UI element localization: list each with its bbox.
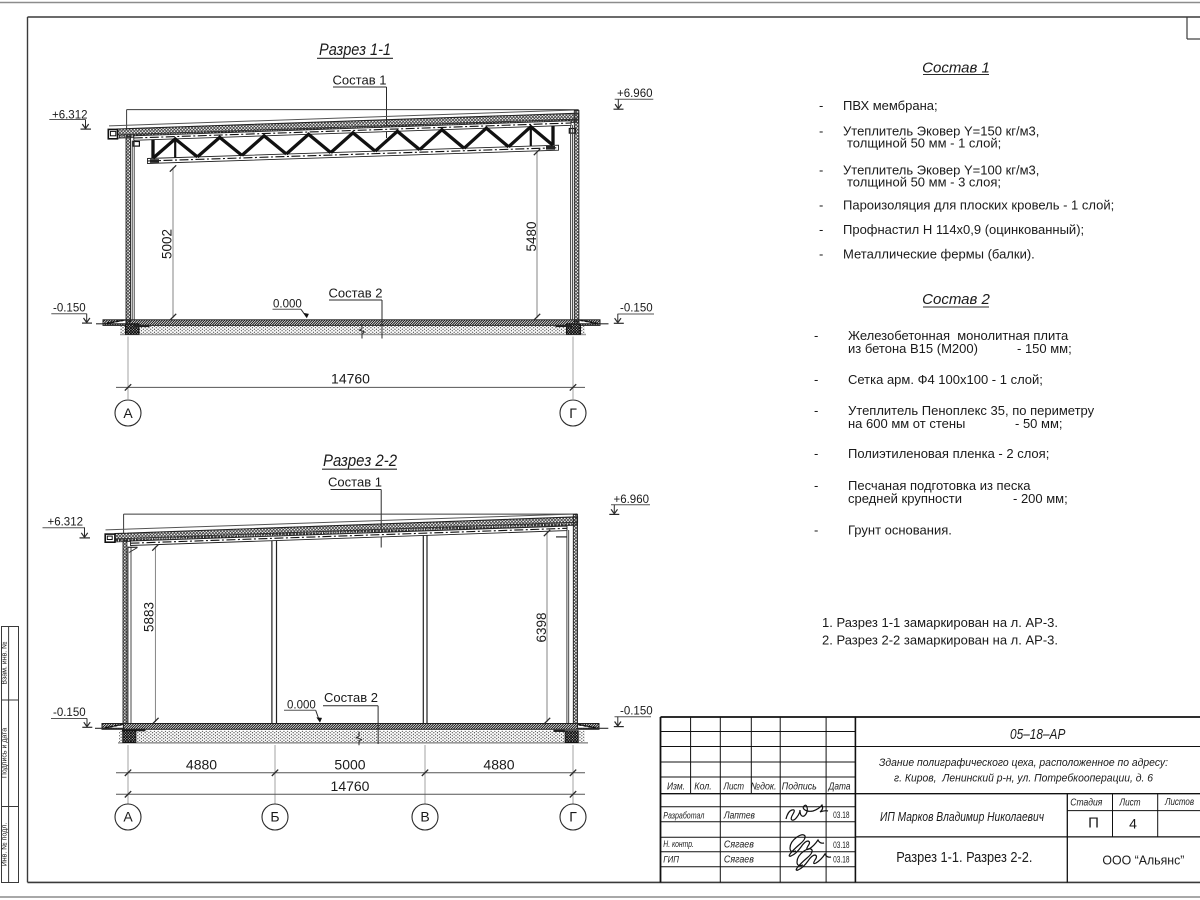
svg-text:ООО “Альянс”: ООО “Альянс” [1102,853,1184,868]
svg-text:Состав 1: Состав 1 [333,73,387,88]
svg-text:Лист: Лист [723,782,744,793]
svg-text:Н. контр.: Н. контр. [663,839,694,849]
svg-text:-0.150: -0.150 [53,303,86,315]
svg-text:+6.312: +6.312 [48,517,84,529]
svg-text:4880: 4880 [186,757,217,773]
svg-text:-: - [819,198,823,213]
svg-text:Состав 1: Состав 1 [328,475,382,490]
svg-text:14760: 14760 [331,371,370,387]
svg-text:-: - [814,446,818,461]
svg-text:средней крупности: средней крупности [848,491,962,506]
svg-text:толщиной 50 мм - 3 слоя;: толщиной 50 мм - 3 слоя; [847,175,1001,190]
svg-text:Сягаев: Сягаев [724,855,754,866]
svg-text:05–18–АР: 05–18–АР [1010,727,1066,743]
svg-text:5480: 5480 [524,221,539,251]
svg-text:Состав 1: Состав 1 [922,59,990,76]
svg-text:Разрез 2-2: Разрез 2-2 [323,452,397,470]
svg-text:5883: 5883 [142,602,157,632]
svg-text:+6.960: +6.960 [617,88,653,100]
svg-text:Здание полиграфического цеха,: Здание полиграфического цеха, расположен… [879,757,1168,769]
svg-text:Кол.: Кол. [694,782,712,793]
svg-text:Подпись: Подпись [782,782,817,793]
svg-text:Сягаев: Сягаев [724,840,754,851]
svg-text:из бетона В15 (М200): из бетона В15 (М200) [848,341,978,356]
svg-text:-: - [814,328,818,343]
svg-text:6398: 6398 [534,612,549,642]
svg-text:Лист: Лист [1119,797,1141,809]
svg-text:Стадия: Стадия [1070,797,1102,809]
svg-text:Подпись и дата: Подпись и дата [2,728,9,778]
svg-text:В: В [420,809,429,825]
svg-text:4: 4 [1129,816,1137,832]
svg-text:Разрез 1-1. Разрез 2-2.: Разрез 1-1. Разрез 2-2. [896,849,1032,866]
svg-text:Дата: Дата [828,782,851,793]
svg-text:-: - [814,372,818,387]
svg-text:Грунт основания.: Грунт основания. [848,523,952,538]
svg-text:Металлические фермы (балки).: Металлические фермы (балки). [843,247,1035,262]
svg-text:Взам. инв. №: Взам. инв. № [2,641,9,684]
svg-text:-0.150: -0.150 [620,303,653,315]
svg-text:Разрез 1-1: Разрез 1-1 [319,41,391,59]
svg-text:Пароизоляция для плоских крове: Пароизоляция для плоских кровель - 1 сло… [843,198,1114,213]
svg-text:г. Киров, Ленинский р-н, ул.: г. Киров, Ленинский р-н, ул. Потребкоопе… [894,772,1154,784]
svg-text:+6.960: +6.960 [614,494,650,506]
svg-text:ИП Марков Владимир Николаевич: ИП Марков Владимир Николаевич [880,810,1044,824]
svg-text:-: - [819,163,823,178]
svg-text:1. Разрез 1-1 замаркирован на: 1. Разрез 1-1 замаркирован на л. АР-3. [822,615,1058,630]
svg-text:-: - [819,247,823,262]
svg-text:Профнастил Н 114х0,9 (оцинкова: Профнастил Н 114х0,9 (оцинкованный); [843,222,1084,237]
svg-text:- 200 мм;: - 200 мм; [1013,491,1068,506]
svg-text:-: - [814,478,818,493]
svg-text:03.18: 03.18 [833,840,849,850]
svg-text:Инв. № подл.: Инв. № подл. [2,823,9,867]
svg-text:4880: 4880 [483,757,514,773]
svg-text:Листов: Листов [1164,796,1194,808]
svg-text:- 150 мм;: - 150 мм; [1017,341,1072,356]
svg-text:Изм.: Изм. [667,782,685,793]
svg-text:-0.150: -0.150 [620,706,653,718]
svg-text:Сетка арм. Ф4 100х100 - 1 слой: Сетка арм. Ф4 100х100 - 1 слой; [848,372,1043,387]
svg-text:А: А [123,405,133,421]
svg-text:-: - [814,523,818,538]
svg-text:5000: 5000 [334,757,365,773]
svg-text:03.18: 03.18 [833,854,849,864]
svg-text:Состав 2: Состав 2 [329,286,383,301]
svg-text:Состав 2: Состав 2 [922,291,990,308]
svg-text:Б: Б [270,809,279,825]
svg-text:-: - [819,222,823,237]
svg-text:14760: 14760 [331,778,370,794]
svg-text:П: П [1088,815,1099,832]
svg-text:толщиной 50 мм - 1 слой;: толщиной 50 мм - 1 слой; [847,136,1001,151]
svg-text:№док.: №док. [751,782,777,793]
svg-text:Полиэтиленовая пленка - 2 слоя: Полиэтиленовая пленка - 2 слоя; [848,446,1049,461]
svg-text:-: - [819,124,823,139]
svg-text:ГИП: ГИП [663,854,679,864]
svg-text:Лаптев: Лаптев [723,810,755,821]
svg-text:Состав 2: Состав 2 [324,690,378,705]
svg-text:5002: 5002 [160,229,175,259]
svg-text:-: - [814,403,818,418]
svg-text:0.000: 0.000 [273,299,302,311]
svg-text:Г: Г [569,809,577,825]
svg-text:ПВХ мембрана;: ПВХ мембрана; [843,98,938,113]
svg-text:- 50 мм;: - 50 мм; [1015,416,1063,431]
svg-text:Г: Г [569,405,577,421]
svg-text:2. Разрез 2-2 замаркирован на: 2. Разрез 2-2 замаркирован на л. АР-3. [822,633,1058,648]
svg-text:на 600 мм от стены: на 600 мм от стены [848,416,965,431]
svg-text:-: - [819,98,823,113]
svg-text:А: А [123,809,133,825]
svg-text:Разработал: Разработал [663,810,705,820]
svg-text:-0.150: -0.150 [53,707,86,719]
svg-text:03.18: 03.18 [833,810,849,820]
